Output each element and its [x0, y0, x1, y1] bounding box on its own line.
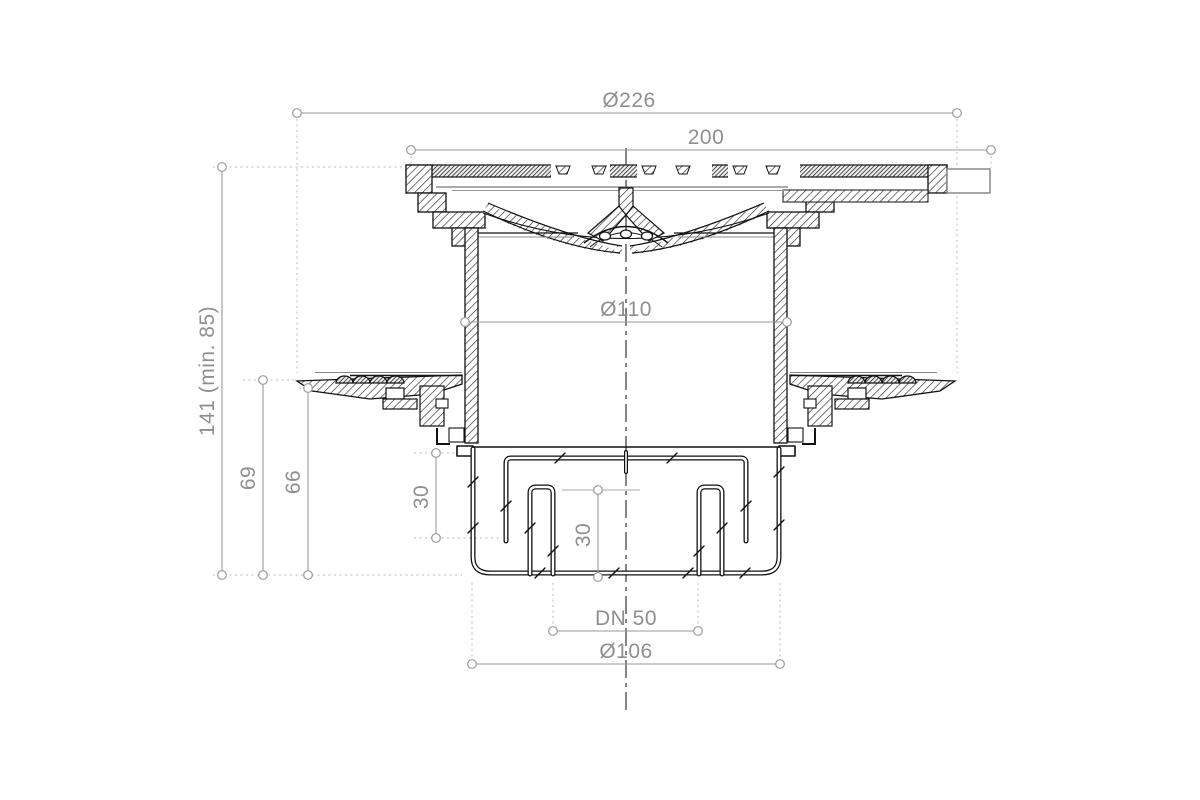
outlet-channel-left [530, 487, 553, 574]
dim-label-trap-depth: 30 [410, 485, 433, 509]
dim-label-frame-width: 200 [688, 126, 725, 149]
body-wall-right [774, 228, 787, 443]
flange-block-left [383, 399, 417, 409]
grate-assembly [406, 164, 990, 228]
flange-slot-right [804, 399, 816, 408]
clamping-flange-right [788, 373, 955, 445]
step-outline-left [449, 428, 464, 442]
dim-label-outlet-size: DN 50 [595, 607, 657, 630]
dim-label-base-diameter: Ø106 [599, 640, 652, 663]
flange-slot-left [436, 399, 448, 408]
flange-notch-right [848, 388, 866, 399]
dim-label-height-69: 69 [237, 466, 260, 490]
drawing-canvas: Ø226 200 Ø110 141 (min. 85) 69 66 30 30 … [0, 0, 1200, 800]
clamping-flange-left [297, 373, 464, 445]
frame-extension-spacer [947, 169, 990, 193]
flange-notch-left [386, 388, 404, 399]
step-outline-right [788, 428, 803, 442]
drawing-page: Ø226 200 Ø110 141 (min. 85) 69 66 30 30 … [0, 0, 1200, 800]
dim-label-flange-diameter: Ø226 [602, 89, 655, 112]
hook-left [437, 428, 450, 444]
body-wall-left [465, 228, 478, 443]
hook-right [802, 428, 815, 444]
flange-block-right [835, 399, 869, 409]
dim-label-installation-height: 141 (min. 85) [196, 306, 219, 436]
dim-label-seal-depth: 30 [572, 523, 595, 547]
dim-label-height-66: 66 [282, 470, 305, 494]
dim-label-body-diameter: Ø110 [600, 298, 652, 321]
grate-slots [551, 164, 800, 178]
